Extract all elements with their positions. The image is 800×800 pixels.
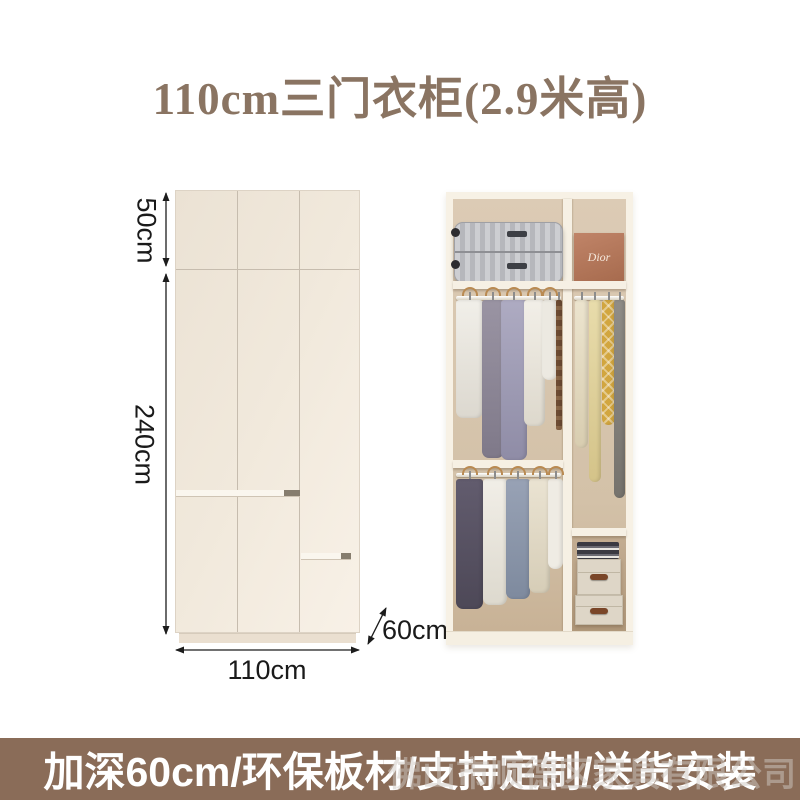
handle-groove (176, 490, 300, 497)
suitcase-handle (507, 263, 527, 269)
wardrobe-diagram-front (175, 190, 360, 633)
box-handle (590, 574, 608, 580)
page-title: 110cm三门衣柜(2.9米高) (0, 62, 800, 127)
storage-box (575, 595, 623, 625)
garment (614, 300, 625, 498)
product-image: 110cm三门衣柜(2.9米高) 50cm 240cm 110cm 60cm (0, 0, 800, 800)
top-cabinet-seam (176, 269, 359, 270)
dim-label-depth: 60cm (382, 617, 448, 644)
storage-box (577, 559, 621, 595)
suitcase-wheel (451, 228, 460, 237)
garment (456, 479, 483, 609)
suitcase-handle (507, 231, 527, 237)
wardrobe-photo: Dior (446, 192, 633, 645)
dior-box-label: Dior (588, 250, 611, 265)
garment (483, 479, 507, 605)
center-divider (563, 199, 572, 631)
groove-shadow (341, 553, 351, 559)
garment (575, 300, 588, 448)
diagram-plinth (179, 633, 356, 643)
folded-clothes (577, 542, 619, 559)
photo-plinth (446, 631, 633, 645)
dior-box: Dior (574, 233, 624, 281)
dim-label-main-height: 240cm (131, 392, 158, 498)
garment (529, 479, 550, 593)
garment (548, 479, 563, 569)
garment (456, 300, 483, 418)
belt-rack (556, 300, 562, 430)
suitcase-wheel (451, 260, 460, 269)
suitcase (454, 222, 563, 283)
dim-label-top-height: 50cm (133, 191, 160, 271)
garment (506, 479, 530, 599)
groove-shadow (284, 490, 300, 496)
garment (542, 300, 557, 380)
door-seam (299, 191, 300, 632)
box-handle (590, 608, 608, 614)
suitcase-zipper (455, 251, 562, 253)
garment (589, 300, 601, 482)
side-shelf (572, 528, 626, 536)
watermark: 佛山市顺德区家具有限公司 (388, 747, 796, 796)
dim-label-width: 110cm (197, 657, 337, 684)
handle-groove (301, 553, 351, 560)
door-seam (237, 191, 238, 632)
